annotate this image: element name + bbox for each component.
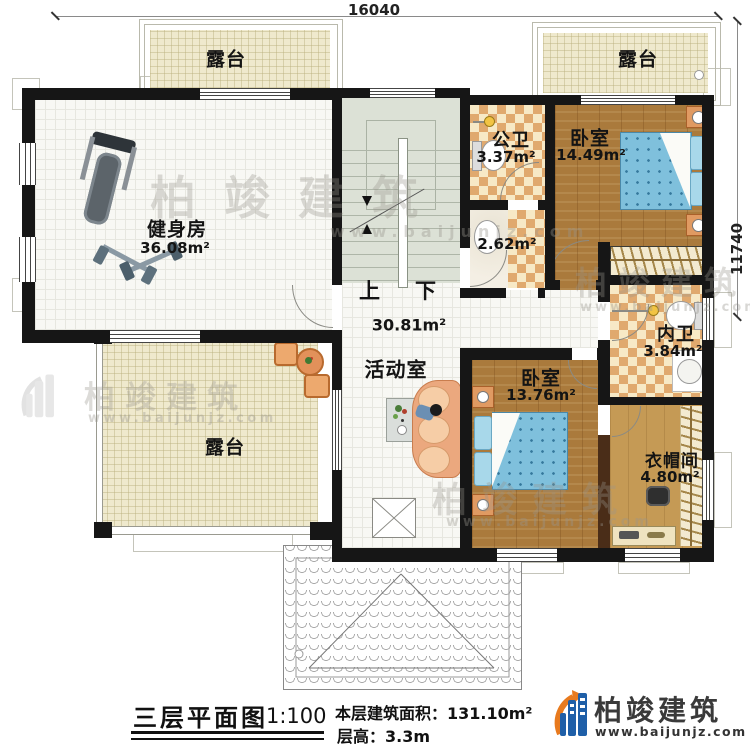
terrace-post: [94, 522, 112, 538]
wall-segment: [545, 95, 555, 290]
wall-segment: [460, 95, 545, 105]
wardrobe-wall: [598, 435, 610, 548]
sink-basin: [677, 359, 702, 384]
window: [497, 548, 557, 562]
stairs-up-label: 上: [359, 275, 381, 305]
wall-segment: [702, 520, 714, 548]
sliding-door: [581, 95, 675, 105]
balustrade-ledge: [133, 534, 293, 552]
bedroom-top-area: 14.49m²: [556, 146, 626, 164]
roof-ridge-lines: [284, 546, 521, 689]
wall-segment: [460, 348, 572, 360]
top-dimension-label: 16040: [348, 1, 400, 19]
drain-circle: [694, 70, 704, 80]
wall-segment: [598, 285, 610, 302]
wall-segment: [702, 340, 714, 460]
wall-segment: [460, 288, 506, 298]
dresser-item: [647, 532, 665, 538]
closet-rod: [610, 259, 702, 261]
wall-segment: [680, 548, 714, 562]
terrace-top-right-label: 露台: [618, 45, 658, 72]
round-table-icon: [296, 348, 324, 376]
watermark-logo-icon: [16, 366, 62, 428]
sofa-cushion: [418, 416, 450, 444]
wall-segment: [22, 88, 200, 100]
wall-segment: [597, 348, 610, 360]
floor-plan-canvas: 16040 11740: [0, 0, 750, 753]
wall-segment: [538, 200, 545, 210]
plant-icon: [305, 357, 312, 364]
plan-scale: 1:100: [266, 704, 327, 728]
sofa-cushion: [418, 446, 450, 474]
terrace-top-left-label: 露台: [206, 45, 246, 72]
floor-height-line: 层高：3.3m: [337, 723, 430, 747]
hallway-floor: [460, 290, 598, 348]
gym-label: 健身房: [147, 215, 207, 242]
washroom-area: 2.62m²: [477, 235, 536, 253]
window: [702, 460, 714, 520]
wall-segment: [557, 548, 625, 562]
title-rule: [131, 738, 324, 740]
stair-arrow-down-icon: [362, 196, 372, 206]
activity-room-label: 活动室: [365, 354, 428, 383]
wall-segment: [460, 88, 470, 248]
sliding-door: [200, 88, 290, 100]
window-sill: [714, 452, 732, 528]
wall-segment: [460, 200, 508, 210]
bed-icon: [474, 408, 566, 492]
gym-area: 36.08m²: [140, 239, 210, 257]
closet-hangers: [610, 246, 704, 276]
plant-icon: [395, 405, 402, 412]
brand-name: 柏竣建筑: [594, 689, 722, 729]
table-item: [397, 425, 407, 435]
bed-pillow: [474, 416, 492, 450]
stair-stringer: [398, 138, 408, 288]
stairs-down-label: 下: [415, 275, 437, 305]
wall-segment: [538, 288, 545, 298]
shaft-box: [372, 498, 416, 538]
brand-logo-icon: [552, 686, 592, 744]
sofa-icon: [408, 380, 462, 476]
title-rule: [131, 731, 324, 734]
plan-title: 三层平面图: [133, 698, 268, 733]
roof-tiles: [283, 545, 522, 690]
bed-pillow: [474, 452, 492, 486]
terrace-railing: [96, 343, 103, 527]
window: [19, 143, 36, 185]
building-area-line: 本层建筑面积：131.10m²: [335, 700, 532, 724]
public-bath-area: 3.37m²: [476, 148, 535, 166]
wall-segment: [332, 548, 497, 562]
right-dimension-label: 11740: [728, 204, 746, 294]
wall-lamp-icon: [648, 305, 659, 316]
window: [702, 298, 714, 340]
activity-room-area: 30.81m²: [372, 316, 446, 335]
dresser-icon: [612, 526, 676, 546]
brand-website: www.baijunjz.com: [595, 724, 747, 739]
wall-segment: [342, 88, 370, 98]
wall-segment: [598, 397, 712, 405]
stair-arrow-up-icon: [362, 224, 372, 234]
shaft-cross-icon: [373, 499, 415, 537]
nightstand-icon: [472, 494, 494, 516]
window: [19, 237, 36, 282]
person-head: [430, 404, 442, 416]
window-sill: [714, 292, 732, 348]
wall-segment: [22, 88, 35, 143]
sliding-door: [110, 330, 200, 343]
chair-icon: [274, 342, 298, 366]
wall-segment: [332, 330, 342, 390]
wall-segment: [332, 470, 342, 548]
wall-segment: [332, 88, 342, 285]
terrace-railing: [96, 526, 320, 535]
wall-segment: [200, 330, 342, 343]
dresser-item: [619, 531, 639, 539]
nightstand-icon: [472, 386, 494, 408]
chair-icon: [304, 374, 330, 398]
wall-segment: [460, 360, 472, 548]
wall-segment: [598, 275, 712, 285]
lamp-icon: [477, 391, 489, 403]
sliding-door: [332, 390, 342, 470]
window: [370, 88, 435, 98]
lamp-icon: [477, 499, 489, 511]
inner-bath-area: 3.84m²: [643, 342, 702, 360]
wall-segment: [435, 88, 460, 98]
wall-segment: [545, 280, 560, 290]
terrace-post: [310, 522, 332, 540]
stool-icon: [646, 486, 670, 506]
window-sill: [618, 562, 690, 574]
window: [625, 548, 680, 562]
bed-icon: [620, 128, 708, 212]
wall-segment: [702, 95, 714, 298]
cloakroom-area: 4.80m²: [640, 468, 699, 486]
wall-segment: [22, 185, 35, 237]
bedroom-middle-area: 13.76m²: [506, 386, 576, 404]
terrace-bottom-label: 露台: [205, 433, 245, 460]
